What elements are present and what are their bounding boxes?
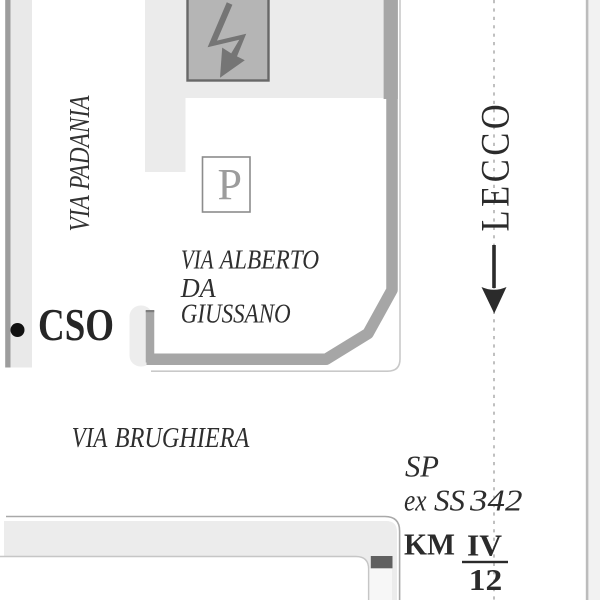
svg-text:342: 342 bbox=[469, 483, 523, 518]
svg-text:IV: IV bbox=[467, 528, 503, 563]
svg-text:12: 12 bbox=[469, 562, 503, 597]
svg-text:LECCO: LECCO bbox=[474, 104, 518, 231]
svg-text:BRUGHIERA: BRUGHIERA bbox=[115, 422, 250, 454]
svg-text:P: P bbox=[218, 160, 242, 209]
svg-text:VIA PADANIA: VIA PADANIA bbox=[64, 95, 96, 231]
svg-text:SS: SS bbox=[434, 483, 465, 518]
svg-text:CSO: CSO bbox=[38, 300, 114, 350]
svg-text:KM: KM bbox=[404, 527, 455, 562]
svg-text:GIUSSANO: GIUSSANO bbox=[181, 299, 291, 329]
svg-text:ex: ex bbox=[404, 483, 427, 518]
svg-text:VIA: VIA bbox=[181, 245, 214, 275]
svg-text:VIA: VIA bbox=[72, 422, 108, 454]
svg-text:ALBERTO: ALBERTO bbox=[218, 245, 319, 275]
svg-text:SP: SP bbox=[405, 449, 439, 484]
